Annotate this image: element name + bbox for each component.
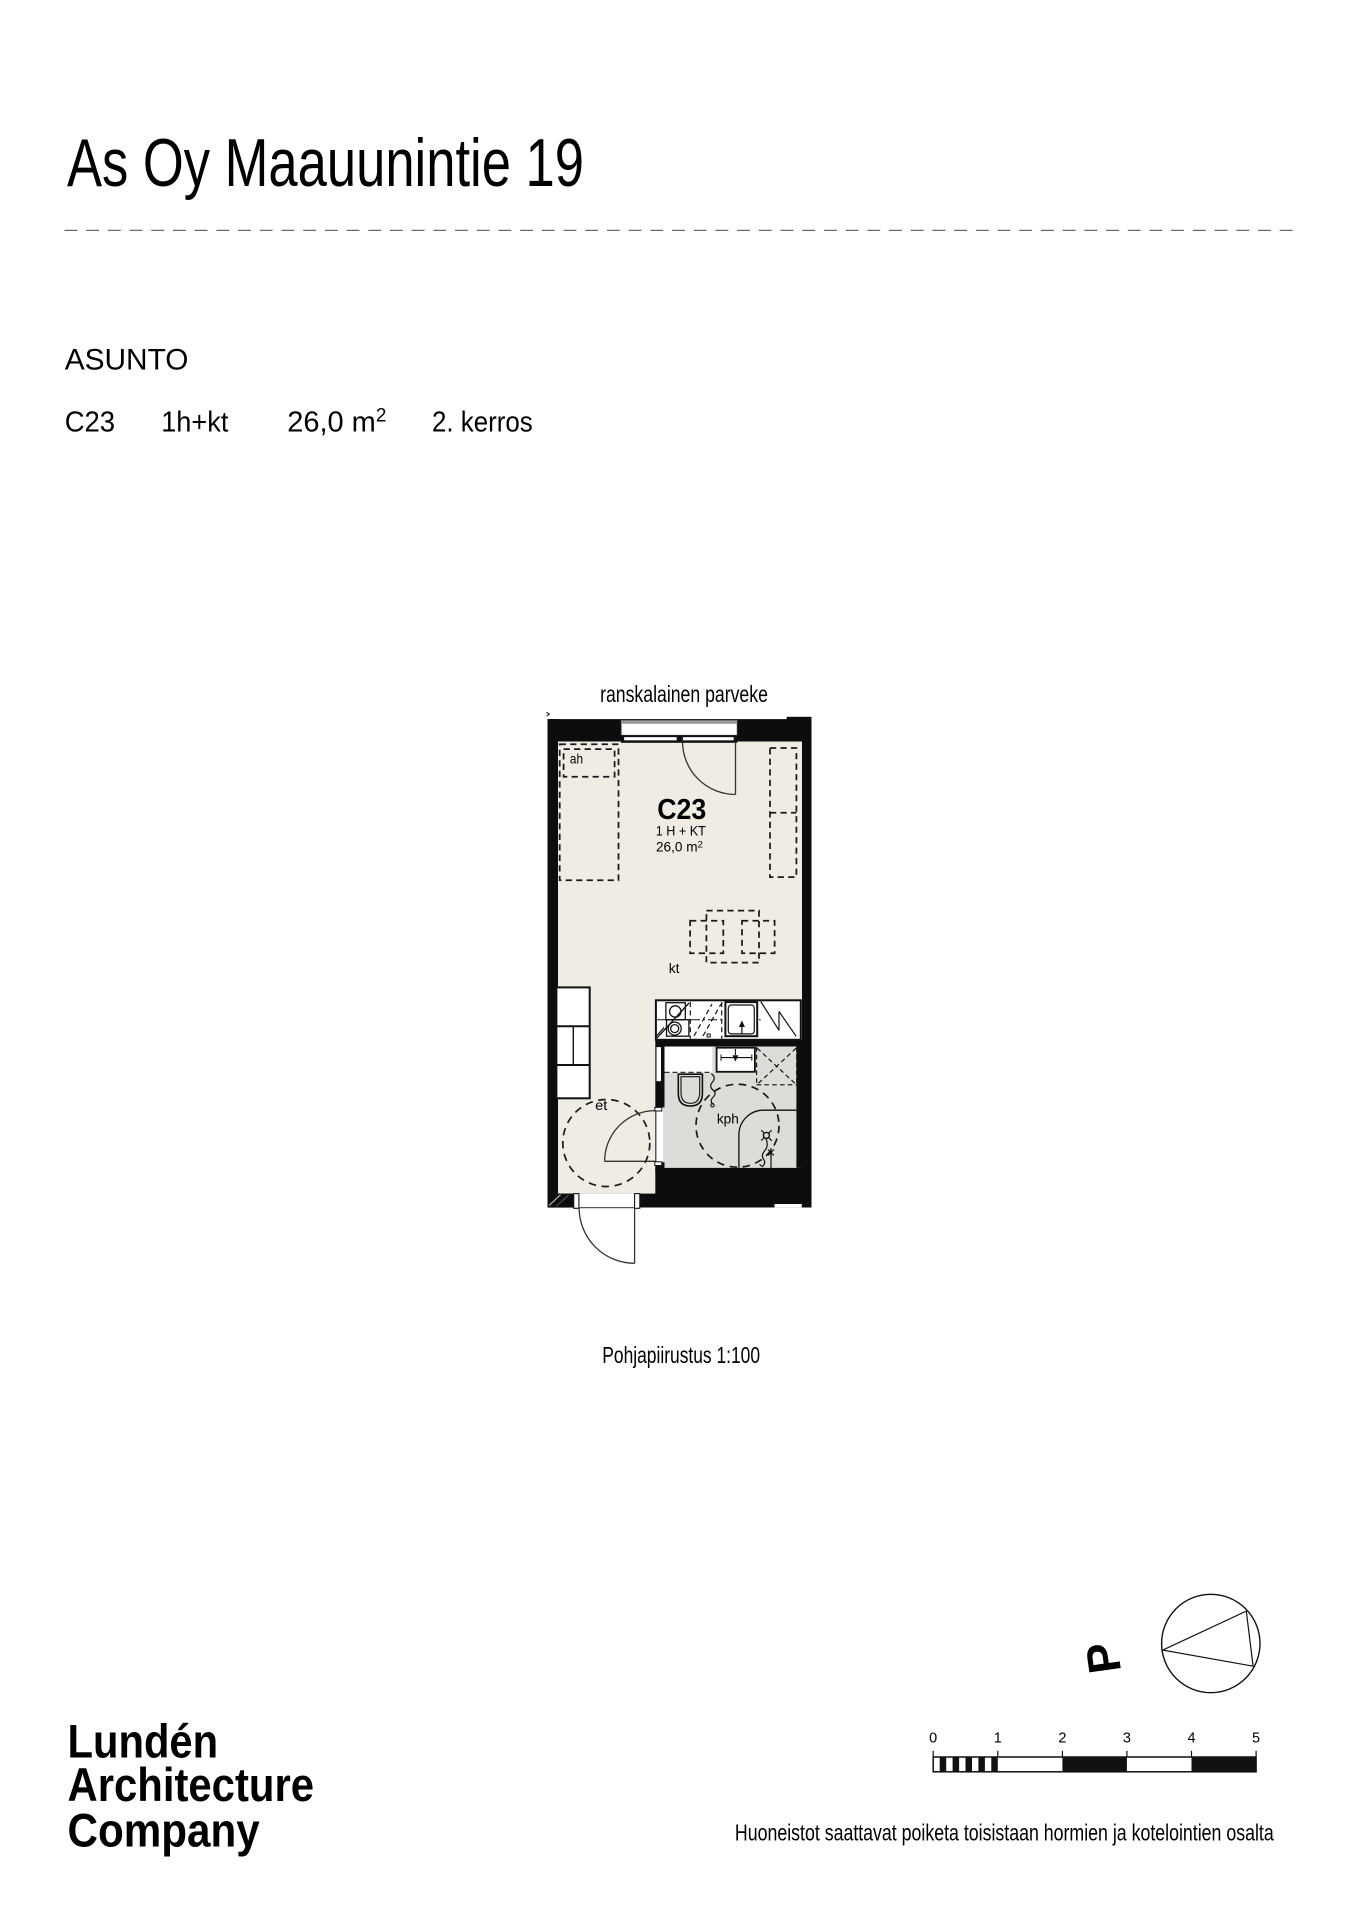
svg-text:et: et	[595, 1097, 607, 1113]
svg-text:0: 0	[929, 1731, 937, 1747]
svg-text:Company: Company	[68, 1804, 260, 1857]
svg-text:kt: kt	[669, 960, 680, 976]
svg-text:26,0 m2: 26,0 m2	[287, 406, 386, 439]
svg-text:2. kerros: 2. kerros	[432, 407, 533, 439]
svg-text:Pohjapiirustus 1:100: Pohjapiirustus 1:100	[602, 1342, 760, 1368]
svg-text:C23: C23	[65, 407, 115, 439]
svg-text:P: P	[1075, 1639, 1131, 1677]
svg-text:ranskalainen parveke: ranskalainen parveke	[600, 681, 768, 707]
svg-text:1h+kt: 1h+kt	[161, 407, 228, 439]
svg-text:4: 4	[1187, 1731, 1195, 1747]
svg-text:2: 2	[1058, 1731, 1066, 1747]
svg-text:kph: kph	[717, 1110, 739, 1126]
svg-text:ah: ah	[570, 751, 583, 767]
svg-text:1 H + KT: 1 H + KT	[656, 823, 706, 838]
svg-text:ASUNTO: ASUNTO	[65, 344, 189, 377]
svg-text:Huoneistot saattavat poiketa t: Huoneistot saattavat poiketa toisistaan …	[735, 1819, 1274, 1845]
svg-text:5: 5	[1252, 1731, 1260, 1747]
svg-text:3: 3	[1123, 1731, 1131, 1747]
svg-text:As Oy Maauunintie 19: As Oy Maauunintie 19	[67, 125, 584, 201]
svg-text:C23: C23	[657, 794, 706, 826]
svg-text:1: 1	[994, 1731, 1002, 1747]
svg-text:26,0 m2: 26,0 m2	[656, 840, 703, 855]
